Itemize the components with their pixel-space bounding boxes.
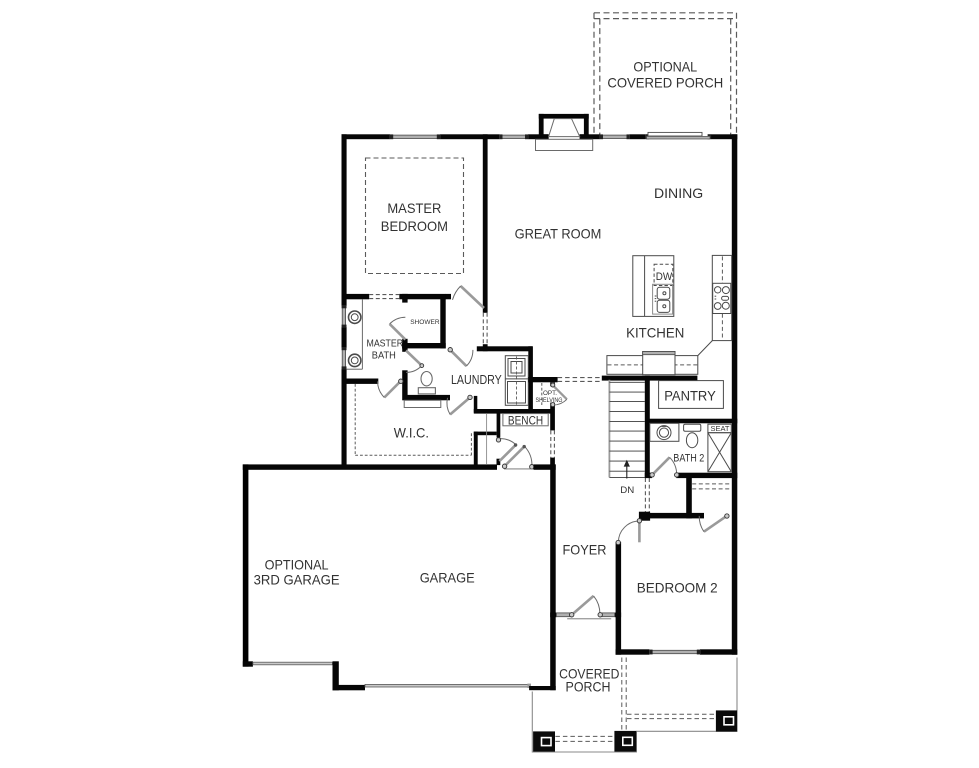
svg-text:SHELVING: SHELVING bbox=[536, 398, 563, 404]
svg-text:COVERED PORCH: COVERED PORCH bbox=[607, 75, 723, 91]
svg-text:PANTRY: PANTRY bbox=[664, 387, 716, 403]
svg-text:BEDROOM: BEDROOM bbox=[381, 218, 448, 234]
svg-text:PORCH: PORCH bbox=[566, 679, 611, 695]
svg-text:OPTIONAL: OPTIONAL bbox=[265, 557, 329, 573]
svg-text:BENCH: BENCH bbox=[508, 415, 543, 427]
svg-text:BEDROOM 2: BEDROOM 2 bbox=[637, 580, 718, 596]
svg-text:BATH 2: BATH 2 bbox=[673, 453, 704, 465]
svg-text:3RD GARAGE: 3RD GARAGE bbox=[254, 571, 340, 587]
svg-text:OPTIONAL: OPTIONAL bbox=[633, 59, 697, 75]
svg-text:W.I.C.: W.I.C. bbox=[394, 425, 429, 441]
svg-text:DINING: DINING bbox=[654, 185, 703, 201]
svg-text:MASTER: MASTER bbox=[367, 339, 404, 350]
svg-text:SHOWER: SHOWER bbox=[410, 319, 440, 326]
svg-text:OPT.: OPT. bbox=[543, 391, 557, 397]
svg-text:DN: DN bbox=[620, 485, 634, 496]
svg-text:KITCHEN: KITCHEN bbox=[626, 325, 684, 341]
svg-text:GARAGE: GARAGE bbox=[420, 570, 475, 586]
svg-text:GREAT ROOM: GREAT ROOM bbox=[515, 226, 602, 242]
svg-text:LAUNDRY: LAUNDRY bbox=[451, 372, 502, 387]
svg-text:BATH: BATH bbox=[372, 351, 396, 362]
svg-text:FOYER: FOYER bbox=[563, 541, 607, 557]
svg-text:DW: DW bbox=[656, 271, 673, 283]
svg-text:SEAT: SEAT bbox=[711, 426, 731, 433]
svg-text:MASTER: MASTER bbox=[387, 200, 441, 216]
